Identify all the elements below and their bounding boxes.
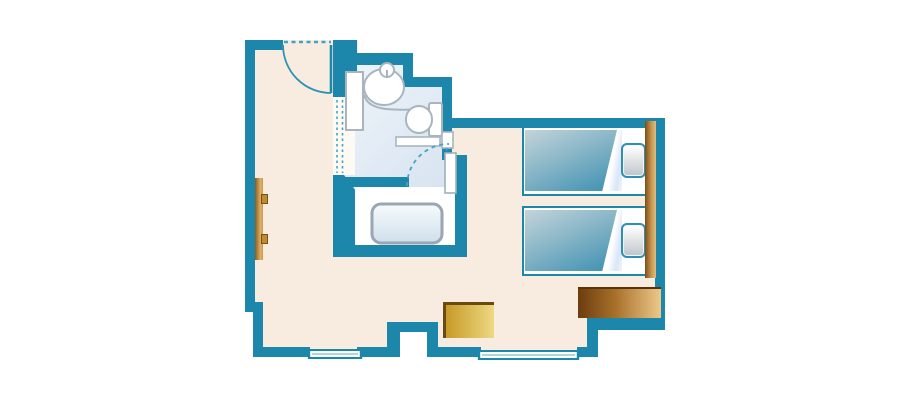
- wall-bump-right: [427, 322, 438, 357]
- wall-bath-right-upper: [442, 77, 452, 160]
- bed-2: [522, 206, 650, 276]
- bed-1-blanket: [525, 130, 617, 191]
- wall-rail: [255, 178, 263, 260]
- wall-bottom-1: [253, 347, 310, 357]
- wall-bottom-3: [438, 347, 481, 357]
- bed-2-pillow: [621, 223, 646, 258]
- side-table: [443, 302, 494, 338]
- wall-left: [245, 40, 255, 312]
- desk: [578, 287, 661, 318]
- wall-bath-right-lower: [455, 160, 467, 257]
- headboard: [645, 121, 656, 278]
- bed-1: [522, 126, 650, 196]
- rail-knob-top: [261, 194, 268, 204]
- wall-bath-divider: [343, 177, 409, 187]
- bathroom-threshold: [333, 97, 355, 175]
- wall-bottom-2: [357, 347, 388, 357]
- tub-room-floor: [355, 187, 455, 245]
- wall-bath-bottom: [343, 245, 467, 257]
- bed-2-blanket: [525, 210, 617, 271]
- wall-under-desk: [587, 318, 665, 330]
- rail-knob-bottom: [261, 234, 268, 244]
- wall-left-step: [245, 302, 263, 312]
- bed-1-pillow: [621, 143, 646, 178]
- wall-right-step: [587, 328, 598, 357]
- wall-bath-step1-vertical: [403, 53, 413, 87]
- floorplan-canvas: [0, 0, 910, 400]
